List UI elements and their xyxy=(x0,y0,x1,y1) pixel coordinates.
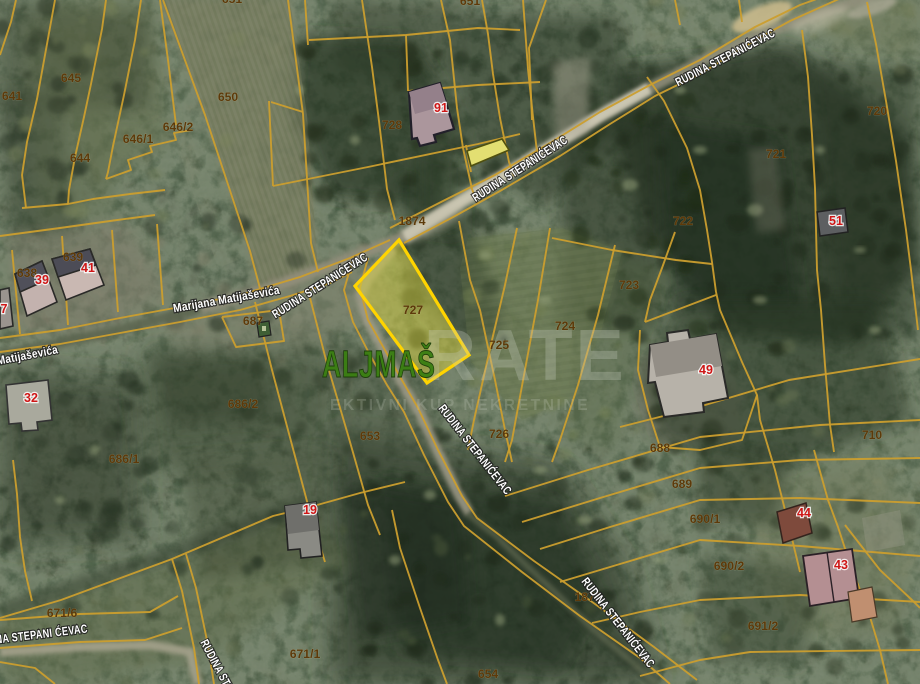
svg-text:723: 723 xyxy=(619,278,640,292)
svg-text:688: 688 xyxy=(650,441,671,455)
svg-text:ALJMAŠ: ALJMAŠ xyxy=(322,341,436,385)
svg-text:710: 710 xyxy=(862,428,883,442)
svg-text:722: 722 xyxy=(673,214,694,228)
svg-text:686/1: 686/1 xyxy=(109,452,140,466)
svg-text:650: 650 xyxy=(218,90,239,104)
svg-text:646/2: 646/2 xyxy=(163,120,194,134)
svg-text:91: 91 xyxy=(434,101,448,115)
svg-text:690/1: 690/1 xyxy=(690,512,721,526)
svg-text:728: 728 xyxy=(382,118,403,132)
svg-text:690/2: 690/2 xyxy=(714,559,745,573)
svg-text:671/1: 671/1 xyxy=(290,647,321,661)
svg-text:654: 654 xyxy=(478,667,499,681)
svg-text:RATE: RATE xyxy=(424,316,627,396)
svg-text:651: 651 xyxy=(460,0,481,8)
svg-text:641: 641 xyxy=(2,89,23,103)
svg-text:7: 7 xyxy=(1,302,8,316)
svg-text:39: 39 xyxy=(35,273,49,287)
svg-text:646/1: 646/1 xyxy=(123,132,154,146)
svg-text:687: 687 xyxy=(243,314,264,328)
svg-text:689: 689 xyxy=(672,477,693,491)
svg-text:726: 726 xyxy=(489,427,510,441)
svg-text:653: 653 xyxy=(360,429,381,443)
svg-text:644: 644 xyxy=(70,151,91,165)
svg-text:720: 720 xyxy=(867,104,888,118)
svg-text:44: 44 xyxy=(797,506,811,520)
svg-text:724: 724 xyxy=(555,319,576,333)
svg-text:41: 41 xyxy=(81,261,95,275)
svg-text:43: 43 xyxy=(834,558,848,572)
svg-text:725: 725 xyxy=(489,338,510,352)
svg-text:1874: 1874 xyxy=(398,214,425,228)
svg-text:645: 645 xyxy=(61,71,82,85)
svg-text:51: 51 xyxy=(829,214,843,228)
svg-text:691/2: 691/2 xyxy=(748,619,779,633)
svg-text:651: 651 xyxy=(222,0,243,6)
svg-text:32: 32 xyxy=(24,391,38,405)
svg-text:686/2: 686/2 xyxy=(228,397,259,411)
svg-text:49: 49 xyxy=(699,363,713,377)
svg-text:671/6: 671/6 xyxy=(47,606,78,620)
svg-text:19: 19 xyxy=(303,503,317,517)
svg-text:721: 721 xyxy=(766,147,787,161)
svg-text:727: 727 xyxy=(403,303,424,317)
svg-text:EKTIVNI KUP NEKRETNINE: EKTIVNI KUP NEKRETNINE xyxy=(330,397,590,414)
